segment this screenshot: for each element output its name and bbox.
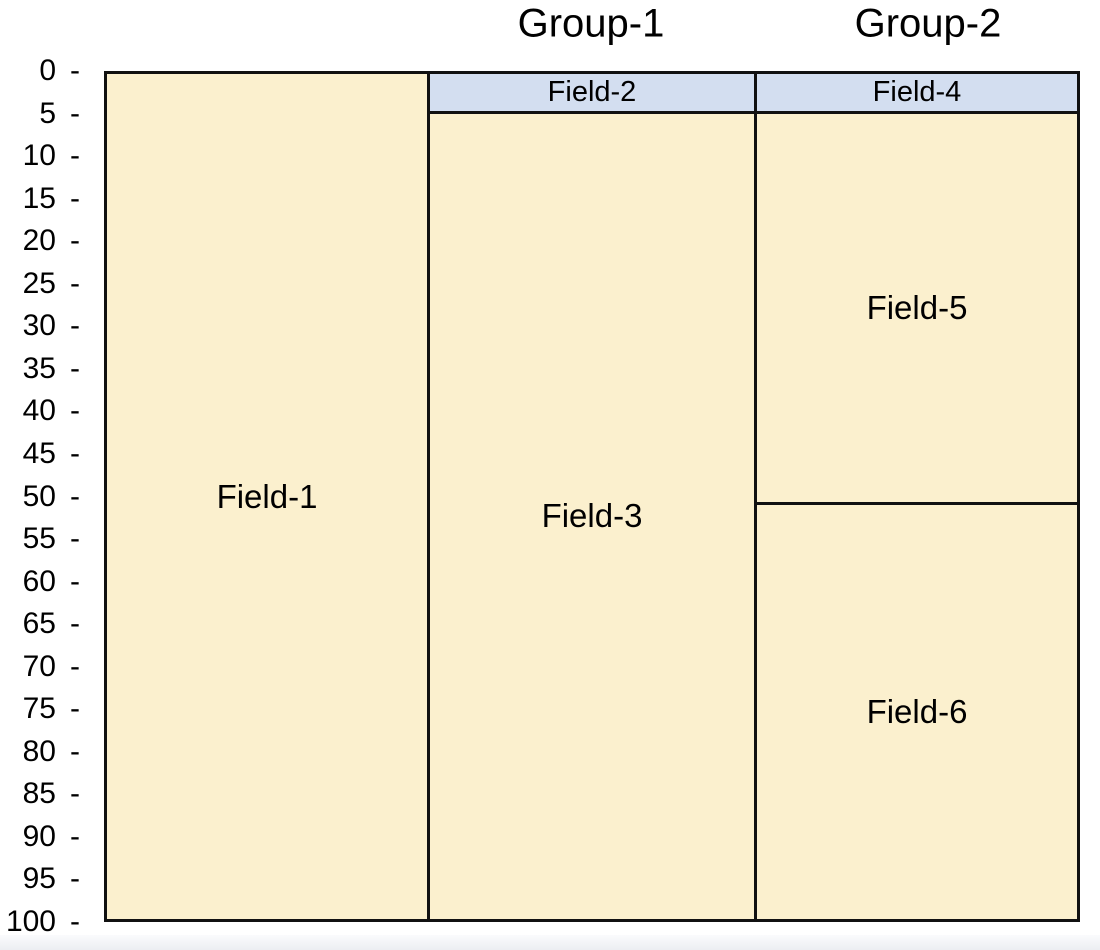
y-tick-mark: - [68, 437, 82, 471]
y-tick-label: 75 [23, 692, 56, 726]
y-tick-mark: - [68, 480, 82, 514]
y-tick-label: 15 [23, 182, 56, 216]
y-tick-label: 95 [23, 862, 56, 896]
y-tick-mark: - [68, 607, 82, 641]
y-tick-55: 55- [0, 521, 82, 557]
y-tick-mark: - [68, 692, 82, 726]
y-tick-mark: - [68, 352, 82, 386]
y-tick-label: 80 [23, 735, 56, 769]
y-tick-mark: - [68, 54, 82, 88]
segment-label-field-4: Field-4 [873, 76, 962, 109]
y-tick-80: 80- [0, 734, 82, 770]
y-tick-label: 35 [23, 352, 56, 386]
segment-field-1: Field-1 [104, 71, 430, 922]
y-tick-label: 85 [23, 777, 56, 811]
y-tick-label: 30 [23, 309, 56, 343]
y-tick-mark: - [68, 565, 82, 599]
y-tick-mark: - [68, 139, 82, 173]
y-tick-mark: - [68, 522, 82, 556]
y-tick-mark: - [68, 267, 82, 301]
y-tick-50: 50- [0, 479, 82, 515]
group-title-group-2: Group-2 [855, 2, 1002, 47]
group-title-group-1: Group-1 [518, 2, 665, 47]
y-tick-75: 75- [0, 691, 82, 727]
segment-field-3: Field-3 [427, 111, 757, 922]
window-bottom-strip [0, 935, 1100, 950]
y-tick-10: 10- [0, 138, 82, 174]
y-tick-label: 55 [23, 522, 56, 556]
y-tick-mark: - [68, 735, 82, 769]
y-tick-mark: - [68, 650, 82, 684]
segment-label-field-1: Field-1 [217, 478, 318, 516]
y-tick-mark: - [68, 862, 82, 896]
segment-field-5: Field-5 [754, 111, 1080, 505]
segment-label-field-2: Field-2 [548, 76, 637, 109]
y-tick-label: 100 [6, 905, 56, 939]
y-tick-20: 20- [0, 223, 82, 259]
y-tick-mark: - [68, 394, 82, 428]
y-tick-label: 90 [23, 820, 56, 854]
y-tick-45: 45- [0, 436, 82, 472]
field-mosaic-chart: Group-1Group-2 0-5-10-15-20-25-30-35-40-… [0, 0, 1100, 950]
segment-label-field-6: Field-6 [867, 693, 968, 731]
y-tick-40: 40- [0, 393, 82, 429]
segment-label-field-3: Field-3 [542, 497, 643, 535]
y-tick-mark: - [68, 777, 82, 811]
y-tick-95: 95- [0, 861, 82, 897]
y-tick-60: 60- [0, 564, 82, 600]
y-tick-label: 70 [23, 650, 56, 684]
y-tick-35: 35- [0, 351, 82, 387]
y-tick-label: 40 [23, 394, 56, 428]
y-tick-label: 10 [23, 139, 56, 173]
y-tick-label: 5 [39, 97, 56, 131]
y-tick-mark: - [68, 224, 82, 258]
y-tick-0: 0- [0, 53, 82, 89]
y-tick-mark: - [68, 905, 82, 939]
y-tick-5: 5- [0, 96, 82, 132]
y-tick-15: 15- [0, 181, 82, 217]
y-tick-label: 50 [23, 480, 56, 514]
y-tick-label: 25 [23, 267, 56, 301]
y-tick-label: 0 [39, 54, 56, 88]
y-tick-90: 90- [0, 819, 82, 855]
y-tick-65: 65- [0, 606, 82, 642]
y-tick-mark: - [68, 97, 82, 131]
y-tick-70: 70- [0, 649, 82, 685]
segment-label-field-5: Field-5 [867, 289, 968, 327]
y-tick-mark: - [68, 820, 82, 854]
y-tick-label: 20 [23, 224, 56, 258]
segment-field-2: Field-2 [427, 71, 757, 114]
y-tick-mark: - [68, 182, 82, 216]
y-tick-85: 85- [0, 776, 82, 812]
y-tick-25: 25- [0, 266, 82, 302]
y-tick-30: 30- [0, 308, 82, 344]
segment-field-6: Field-6 [754, 502, 1080, 922]
y-tick-mark: - [68, 309, 82, 343]
y-tick-label: 60 [23, 565, 56, 599]
segment-field-4: Field-4 [754, 71, 1080, 114]
y-tick-label: 65 [23, 607, 56, 641]
y-tick-label: 45 [23, 437, 56, 471]
